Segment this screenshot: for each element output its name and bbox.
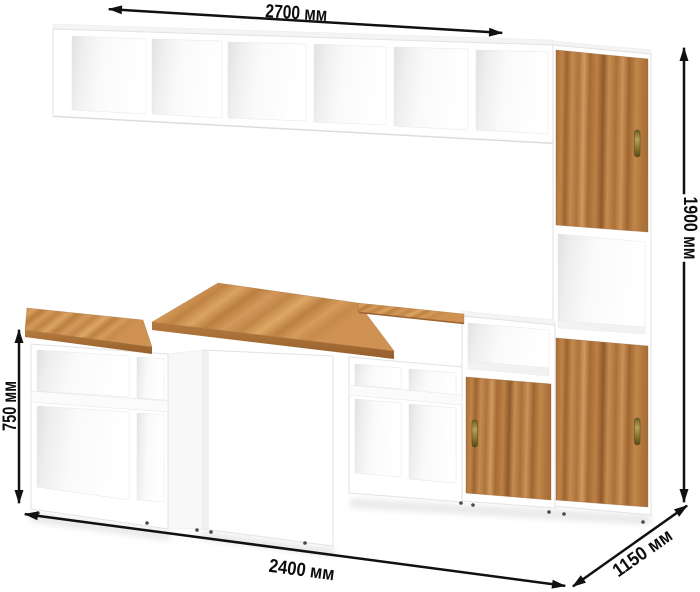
dimension-label-left-height: 750 мм: [0, 381, 21, 431]
left-unit-cubby: [37, 350, 129, 397]
arrowhead: [552, 580, 567, 589]
under-desk-cubby: [409, 404, 456, 483]
dimension-label-bottom-width: 2400 мм: [268, 556, 336, 586]
arrowhead: [680, 489, 689, 503]
door-handle: [635, 130, 641, 157]
shelf-cubby: [314, 44, 386, 125]
under-desk-shelf-unit: [349, 357, 462, 502]
desk-right-bridge-top: [358, 303, 464, 323]
arrowhead: [674, 505, 688, 517]
shelf-cubby: [476, 50, 548, 134]
dimension-left-height: 750 мм: [0, 329, 24, 504]
left-shelf-unit: [31, 344, 168, 529]
dimension-label-top-width: 2700 мм: [265, 1, 328, 26]
left-unit-cubby: [137, 357, 164, 400]
under-desk-cubby: [355, 399, 401, 477]
shelf-cubby: [394, 47, 468, 130]
left-unit-cubby: [37, 406, 129, 500]
shelf-cubby: [152, 39, 222, 118]
arrowhead: [572, 575, 586, 587]
door-handle: [635, 418, 641, 445]
arrowhead: [680, 47, 689, 61]
middle-cabinet-door: [466, 377, 551, 500]
lower-right-cabinet-door: [556, 338, 648, 507]
support-panel-front: [203, 350, 333, 546]
under-desk-cubby: [355, 364, 401, 389]
furniture-dimension-diagram: 2700 мм 1900 мм 750 мм 2400 мм 1150 мм: [0, 0, 700, 592]
left-unit-cubby: [137, 413, 164, 502]
step-cabinet-open-cubby: [468, 323, 549, 368]
wall-shelf-unit: [53, 24, 553, 144]
center-support-panel: [203, 350, 333, 546]
desk-top: [25, 283, 464, 359]
desk-side-panel: [168, 350, 203, 529]
shelf-cubby: [72, 36, 146, 114]
diagram-canvas: 2700 мм 1900 мм 750 мм 2400 мм 1150 мм: [0, 0, 700, 592]
tall-cabinet-open-cubby: [558, 234, 645, 327]
dimension-right-height: 1900 мм: [679, 47, 700, 503]
middle-step-cabinet: [462, 311, 555, 508]
arrowhead: [15, 490, 24, 504]
door-handle: [472, 420, 478, 447]
arrowhead: [15, 329, 24, 343]
upper-cabinet-door: [556, 50, 648, 232]
shelf-cubby: [228, 42, 306, 121]
support-panel-edge-shade: [203, 350, 209, 529]
dimension-label-right-height: 1900 мм: [679, 197, 700, 260]
